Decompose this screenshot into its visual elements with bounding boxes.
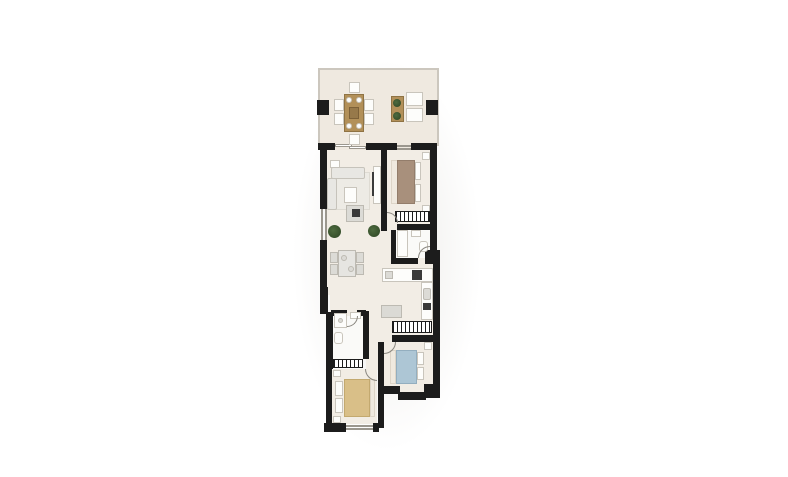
bathroom1-basin [411,230,421,237]
floor-plan [0,0,788,477]
outdoor-chair-east-2 [364,113,374,125]
terrace-slider-glass-b [349,146,366,149]
wall-bathroom2-right [363,311,369,359]
bedroom2-nightstand [424,342,432,350]
wall-left-jog [320,287,328,314]
bathroom2-toilet [334,332,343,344]
bedroom1-bed-blanket [397,160,415,204]
shower-drain [338,318,343,323]
lounge-chair-2 [406,108,423,122]
bedroom2-bed-blanket [396,350,417,384]
wall-kitchen-right [433,262,440,324]
dining-chair-4 [356,264,364,275]
wall-left-mid [320,240,327,289]
bedroom1-wardrobe [395,211,430,222]
bedroom2-pillow-1 [417,352,424,365]
terrace-pillar-left [317,100,329,115]
outdoor-chair-west-2 [334,113,344,125]
living-plant-1 [328,225,341,238]
wall-divider-bedrooms [378,342,384,428]
kitchen-mat [381,305,402,318]
bedroom1-pillow-1 [415,162,421,180]
lounge-chair-1 [406,92,423,106]
wall-left-upper [320,143,327,209]
dining-plate-2 [348,266,354,272]
kitchen-counter-item [385,271,393,279]
outdoor-plate-1 [346,97,352,103]
bedroom1-pillow-2 [415,184,421,202]
dining-chair-1 [330,252,338,263]
bedroom3-bed-sheet [370,379,375,417]
coffee-table [344,187,357,203]
wall-bedroom2-corner [424,384,440,398]
bathtub [397,230,408,257]
wall-bedroom3-left [326,369,332,428]
tv-unit [373,166,381,204]
bedroom2-pillow-2 [417,367,424,380]
floor-plan-image [0,0,788,477]
kitchen-hob [423,303,431,310]
bedroom3-nightstand-1 [333,370,341,377]
sofa-left-section [327,178,337,210]
outdoor-chair-east-1 [364,99,374,111]
bedroom3-wardrobe [333,359,363,368]
tv-screen [372,172,374,196]
wall-bedroom2-bottom-b [398,392,426,400]
outdoor-table-runner [349,107,359,119]
console-plant-2 [393,112,401,120]
console-plant-1 [393,99,401,107]
bedroom3-window-a [346,425,373,427]
outdoor-chair-west-1 [334,99,344,111]
dining-table [338,250,356,277]
kitchen-sink [423,288,431,300]
bedroom1-window-b [397,148,411,150]
kitchen-oven [412,270,422,280]
outdoor-chair-south [349,134,360,145]
living-window-b [325,209,327,240]
outdoor-chair-north [349,82,360,93]
wall-bathroom1-bottom [391,258,418,264]
media-table-inner [352,209,360,217]
bedroom1-window-a [397,145,411,147]
hall-wardrobe [392,321,432,333]
terrace-outline-top [318,68,439,70]
living-plant-2 [368,225,380,237]
bedroom3-pillow-1 [335,381,343,396]
outdoor-plate-2 [356,97,362,103]
dining-chair-3 [356,252,364,263]
wall-bathroom2-left [326,312,333,369]
bedroom1-nightstand-1 [422,152,430,160]
bedroom3-bed-blanket [344,379,370,417]
sofa-top-section [331,167,365,179]
dining-chair-2 [330,264,338,275]
bedroom3-pillow-2 [335,398,343,413]
wall-bedroom2-top [392,335,433,342]
wall-right-upper [430,143,437,253]
bedroom3-window-b [346,428,373,430]
dining-plate-1 [341,255,347,261]
terrace-pillar-right [426,100,438,115]
living-window-a [321,209,323,240]
wall-bedroom3-bottom [324,423,346,432]
bedroom3-nightstand-2 [333,416,341,423]
outdoor-plate-4 [356,123,362,129]
outdoor-plate-3 [346,123,352,129]
